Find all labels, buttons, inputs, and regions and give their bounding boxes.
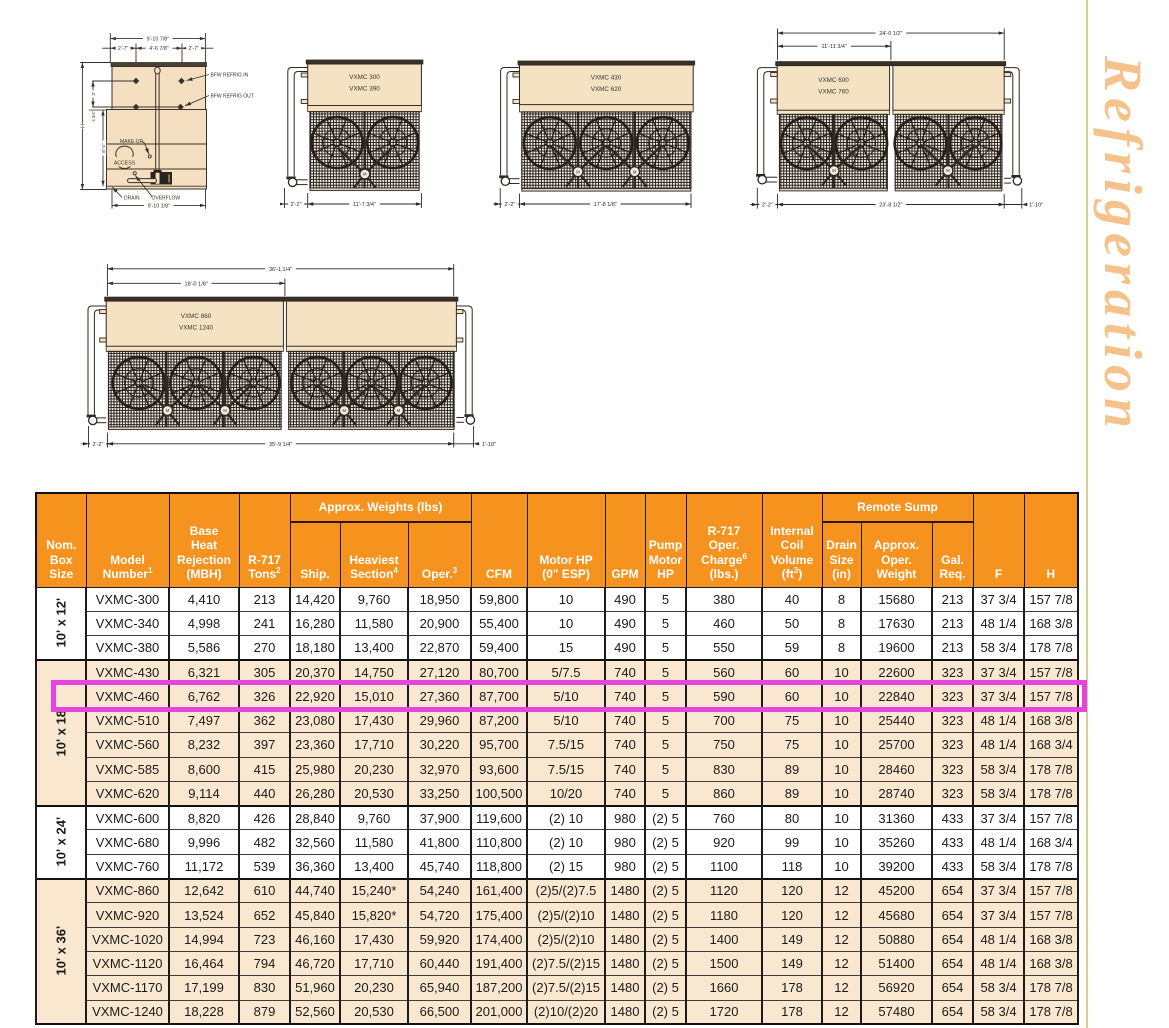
- svg-text:24'-0 1/2": 24'-0 1/2": [879, 31, 902, 37]
- svg-text:23'-8 1/2": 23'-8 1/2": [879, 203, 902, 209]
- svg-text:M: M: [946, 168, 950, 173]
- svg-text:M: M: [363, 172, 367, 177]
- svg-text:M: M: [633, 169, 637, 174]
- svg-text:35'-9 1/4": 35'-9 1/4": [269, 442, 292, 448]
- svg-text:M: M: [166, 408, 170, 413]
- svg-text:4'-6 7/8": 4'-6 7/8": [149, 46, 169, 52]
- svg-text:2'-2": 2'-2": [762, 203, 773, 209]
- svg-text:VXMC 620: VXMC 620: [591, 86, 622, 93]
- svg-text:VXMC 1240: VXMC 1240: [179, 324, 213, 331]
- svg-text:3': 3': [91, 92, 97, 96]
- svg-text:36'-1 1/4": 36'-1 1/4": [269, 267, 292, 273]
- svg-text:ACCESS: ACCESS: [114, 161, 136, 167]
- svg-text:2'-2": 2'-2": [291, 202, 302, 208]
- svg-text:VXMC 390: VXMC 390: [349, 86, 380, 93]
- svg-text:VXMC 300: VXMC 300: [349, 74, 380, 81]
- svg-text:M: M: [397, 408, 401, 413]
- svg-text:17'-8 1/8": 17'-8 1/8": [594, 202, 617, 208]
- svg-text:9'-10 1/8": 9'-10 1/8": [148, 203, 170, 209]
- svg-text:BFW REFRIG OUT: BFW REFRIG OUT: [211, 94, 254, 100]
- svg-text:11'-11 3/4": 11'-11 3/4": [821, 44, 846, 50]
- svg-text:2'-2": 2'-2": [504, 202, 515, 208]
- svg-text:8'-4": 8'-4": [101, 143, 107, 153]
- svg-text:MAKE-UP: MAKE-UP: [120, 139, 143, 145]
- svg-text:9'-10 7/8": 9'-10 7/8": [147, 37, 169, 43]
- svg-text:M: M: [576, 169, 580, 174]
- svg-text:BFW REFRIG IN: BFW REFRIG IN: [211, 73, 249, 79]
- svg-text:4 3/4": 4 3/4": [91, 110, 96, 121]
- svg-text:2'-2": 2'-2": [92, 442, 103, 448]
- svg-text:VXMC 860: VXMC 860: [181, 313, 212, 320]
- svg-text:M: M: [343, 408, 347, 413]
- svg-text:H: H: [80, 124, 86, 128]
- svg-text:2'-7": 2'-7": [118, 46, 129, 52]
- svg-text:11'-7 3/4": 11'-7 3/4": [353, 202, 376, 208]
- svg-text:18'-0 1/8": 18'-0 1/8": [185, 281, 208, 287]
- svg-text:VXMC 430: VXMC 430: [591, 74, 622, 81]
- svg-text:M: M: [223, 408, 227, 413]
- svg-text:VXMC 600: VXMC 600: [818, 77, 849, 84]
- svg-text:OVERFLOW: OVERFLOW: [152, 196, 181, 202]
- svg-text:1'-10": 1'-10": [482, 442, 496, 448]
- svg-text:DRAIN: DRAIN: [124, 196, 140, 202]
- svg-text:M: M: [832, 168, 836, 173]
- svg-text:1'-10": 1'-10": [1029, 203, 1043, 209]
- svg-text:VXMC 760: VXMC 760: [818, 89, 849, 96]
- svg-text:2'-7": 2'-7": [188, 46, 199, 52]
